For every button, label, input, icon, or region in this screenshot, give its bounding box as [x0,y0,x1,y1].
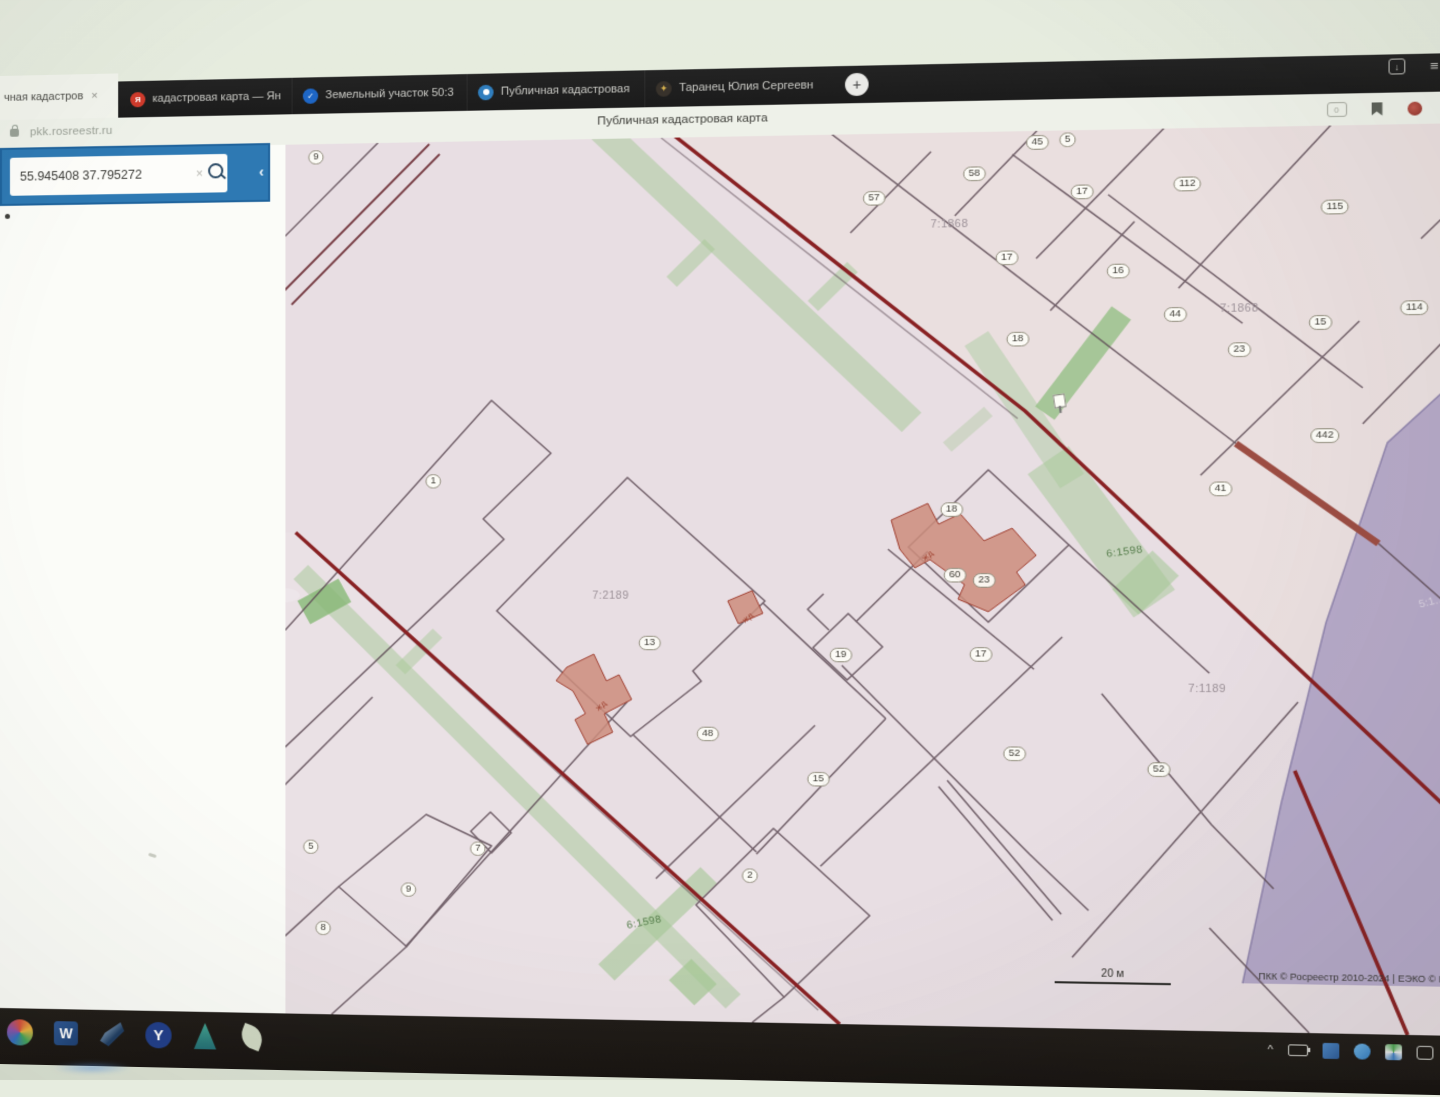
photo-of-screen: { "browser": { "active_tab": {"label": "… [0,0,1440,1080]
list-bullet [5,214,10,219]
search-result-marker[interactable] [1053,393,1067,408]
parcel-number-badge[interactable]: 58 [963,166,985,181]
window-controls: ↓ ≡ – □ × [1388,56,1440,75]
tab-publichnaya-kadastrovaya[interactable]: Публичная кадастровая [470,70,646,110]
parcel-number-badge[interactable]: 41 [1209,481,1232,496]
tab-label: кадастровая карта — Ян [152,90,280,105]
map-area-label: 7:1868 [930,218,968,231]
parcel-number-badge[interactable]: 114 [1400,300,1428,315]
toolbar-icons: 0 ↓ [1326,94,1440,121]
map-area-label: 7:2189 [592,589,629,601]
eagle-icon: ✦ [656,81,672,97]
screen-smudge [148,853,157,858]
parcel-number-badge[interactable]: 23 [1228,342,1251,357]
parcel-number-badge[interactable]: 16 [1107,264,1130,279]
swoosh-icon[interactable] [98,1020,126,1049]
parcel-number-badge[interactable]: 48 [697,727,719,742]
battery-icon[interactable] [1288,1044,1308,1056]
tab-active-cadastral[interactable]: чная кадастров × [0,73,118,120]
search-input[interactable]: 55.945408 37.795272 [10,154,227,196]
parcel-number-badge[interactable]: 57 [863,191,885,206]
map-area-label: 6:1598 [626,914,663,932]
map-labels-layer: 9575845517112161151716442315114184424111… [285,122,1440,1037]
teal-app-icon[interactable] [191,1022,219,1051]
tab-label: Публичная кадастровая [501,83,630,98]
map-area-label: 5:1… [1418,593,1440,611]
parcel-number-badge[interactable]: 2 [742,868,758,883]
yandex-icon: Я [130,91,145,106]
parcel-number-badge[interactable]: 60 [944,568,966,583]
lock-icon [10,129,19,137]
leaf-icon[interactable] [238,1023,267,1052]
scale-bar: 20 м [1055,968,1171,986]
map-area-label: жд [740,610,755,625]
pinwheel-icon[interactable] [1385,1044,1402,1060]
blue-round-icon[interactable] [1353,1043,1370,1059]
url-text[interactable]: pkk.rosreestr.ru [30,125,113,139]
blue-square-icon[interactable] [1322,1043,1339,1059]
map-area-label: жд [594,698,609,712]
pkk-icon [478,84,494,100]
word-icon[interactable]: W [52,1019,80,1048]
tab-label: чная кадастров [4,90,83,104]
parcel-number-badge[interactable]: 18 [940,502,962,517]
tab-close-icon[interactable]: × [91,90,97,102]
parcel-number-badge[interactable]: 1 [426,474,442,488]
parcel-number-badge[interactable]: 112 [1173,176,1201,191]
tab-label: Земельный участок 50:3 [325,87,453,102]
downloads-icon[interactable]: ↓ [1388,58,1405,74]
system-tray: ^ ✆ ENG [1267,1041,1440,1064]
parcel-number-badge[interactable]: 13 [639,636,661,650]
scale-label: 20 м [1101,968,1124,980]
menu-icon[interactable]: ≡ [1430,58,1439,74]
parcel-number-badge[interactable]: 15 [807,772,829,787]
parcel-number-badge[interactable]: 52 [1003,746,1025,761]
left-sidebar: 55.945408 37.795272 × ‹ [0,145,286,1014]
parcel-number-badge[interactable]: 17 [970,647,992,662]
parcel-number-badge[interactable]: 17 [1071,184,1093,199]
parcel-number-badge[interactable]: 8 [315,921,331,935]
parcel-number-badge[interactable]: 7 [470,841,486,855]
search-icon[interactable] [208,163,223,178]
parcel-number-badge[interactable]: 19 [830,648,852,663]
extensions-icon[interactable]: 0 [1326,102,1346,117]
tab-label: Таранец Юлия Сергеевн [679,79,813,94]
profile-avatar-icon[interactable] [1407,101,1422,115]
page-body: 55.945408 37.795272 × ‹ [0,122,1440,1038]
tab-taranets[interactable]: ✦ Таранец Юлия Сергеевн [647,66,825,107]
parcel-number-badge[interactable]: 23 [973,573,995,588]
tab-kadastrovaya-karta[interactable]: Я кадастровая карта — Ян [122,78,292,118]
parcel-number-badge[interactable]: 5 [303,840,319,854]
check-icon: ✓ [303,88,318,104]
map-area-label: 7:1189 [1188,683,1226,696]
monitor-screen: чная кадастров × Я кадастровая карта — Я… [0,43,1440,1097]
taskbar-apps: W Y [6,1018,266,1051]
clear-icon[interactable]: × [196,166,203,180]
parcel-number-badge[interactable]: 15 [1309,315,1332,330]
parcel-number-badge[interactable]: 115 [1321,199,1349,214]
parcel-number-badge[interactable]: 52 [1147,762,1170,777]
map-area-label: 7:1868 [1220,302,1259,315]
parcel-number-badge[interactable]: 17 [996,250,1018,265]
parcel-number-badge[interactable]: 18 [1006,332,1028,347]
map-area-label: жд [920,548,935,563]
parcel-number-badge[interactable]: 442 [1310,428,1339,443]
map-area-label: 6:1598 [1106,544,1144,560]
search-panel: 55.945408 37.795272 × ‹ [0,143,270,206]
parcel-number-badge[interactable]: 9 [308,150,324,164]
screen-glare [52,1062,132,1074]
parcel-number-badge[interactable]: 9 [401,882,417,896]
color-wheel-icon[interactable] [6,1018,34,1047]
parcel-number-badge[interactable]: 44 [1164,307,1187,322]
tab-zemelny-uchastok[interactable]: ✓ Земельный участок 50:3 [295,74,468,114]
bookmark-flag-icon[interactable] [1371,102,1382,116]
parcel-number-badge[interactable]: 5 [1059,132,1076,147]
cadastral-map[interactable]: 9575845517112161151716442315114184424111… [285,122,1440,1037]
chevron-up-icon[interactable]: ^ [1267,1043,1273,1056]
parcel-number-badge[interactable]: 45 [1026,135,1048,150]
yandex-browser-icon[interactable]: Y [144,1021,172,1050]
collapse-chevron-icon[interactable]: ‹ [259,163,264,180]
window-icon[interactable] [1416,1046,1433,1060]
page-title: Публичная кадастровая карта [572,112,794,129]
